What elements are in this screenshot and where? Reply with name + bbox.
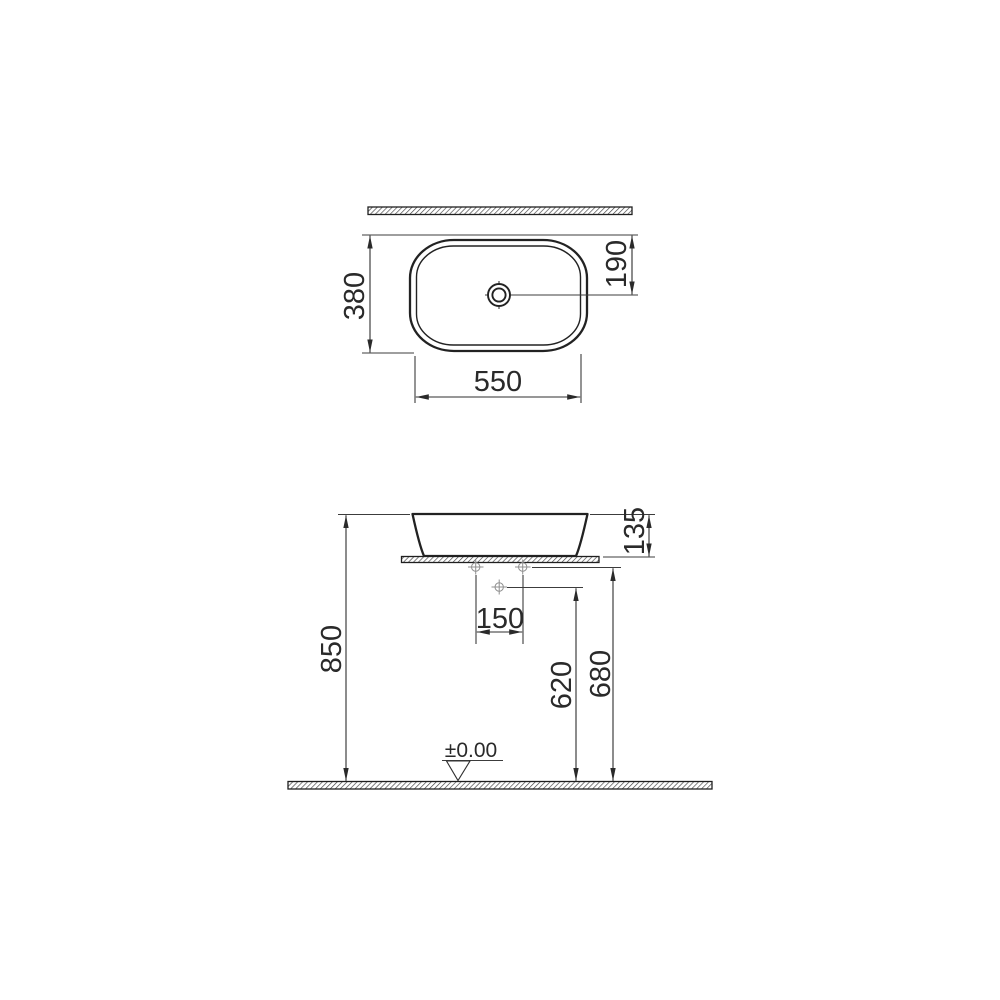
dim-label-380: 380 bbox=[339, 272, 371, 320]
dim-label-135: 135 bbox=[619, 507, 651, 555]
dim-label-550: 550 bbox=[474, 366, 522, 398]
dim-label-850: 850 bbox=[316, 625, 348, 673]
countertop-section-hatch bbox=[402, 557, 600, 563]
side-view: 135 150 680 620 850 bbox=[288, 507, 712, 789]
dim-label-190: 190 bbox=[601, 240, 633, 288]
drain-point-marker bbox=[492, 580, 508, 595]
technical-drawing-page: 380 190 550 135 bbox=[0, 0, 1000, 1000]
floor-datum-label: ±0.00 bbox=[445, 739, 497, 762]
basin-side-outline bbox=[413, 514, 588, 556]
datum-triangle-icon bbox=[447, 761, 471, 781]
dim-label-680: 680 bbox=[585, 650, 617, 698]
dim-label-150: 150 bbox=[476, 603, 524, 635]
top-view: 380 190 550 bbox=[339, 207, 638, 403]
wall-section-hatch bbox=[368, 207, 632, 215]
washbasin-installation-drawing: 380 190 550 135 bbox=[0, 0, 1000, 1000]
floor-section-hatch bbox=[288, 782, 712, 790]
dim-label-620: 620 bbox=[546, 661, 578, 709]
drain-outer-circle bbox=[488, 284, 510, 306]
